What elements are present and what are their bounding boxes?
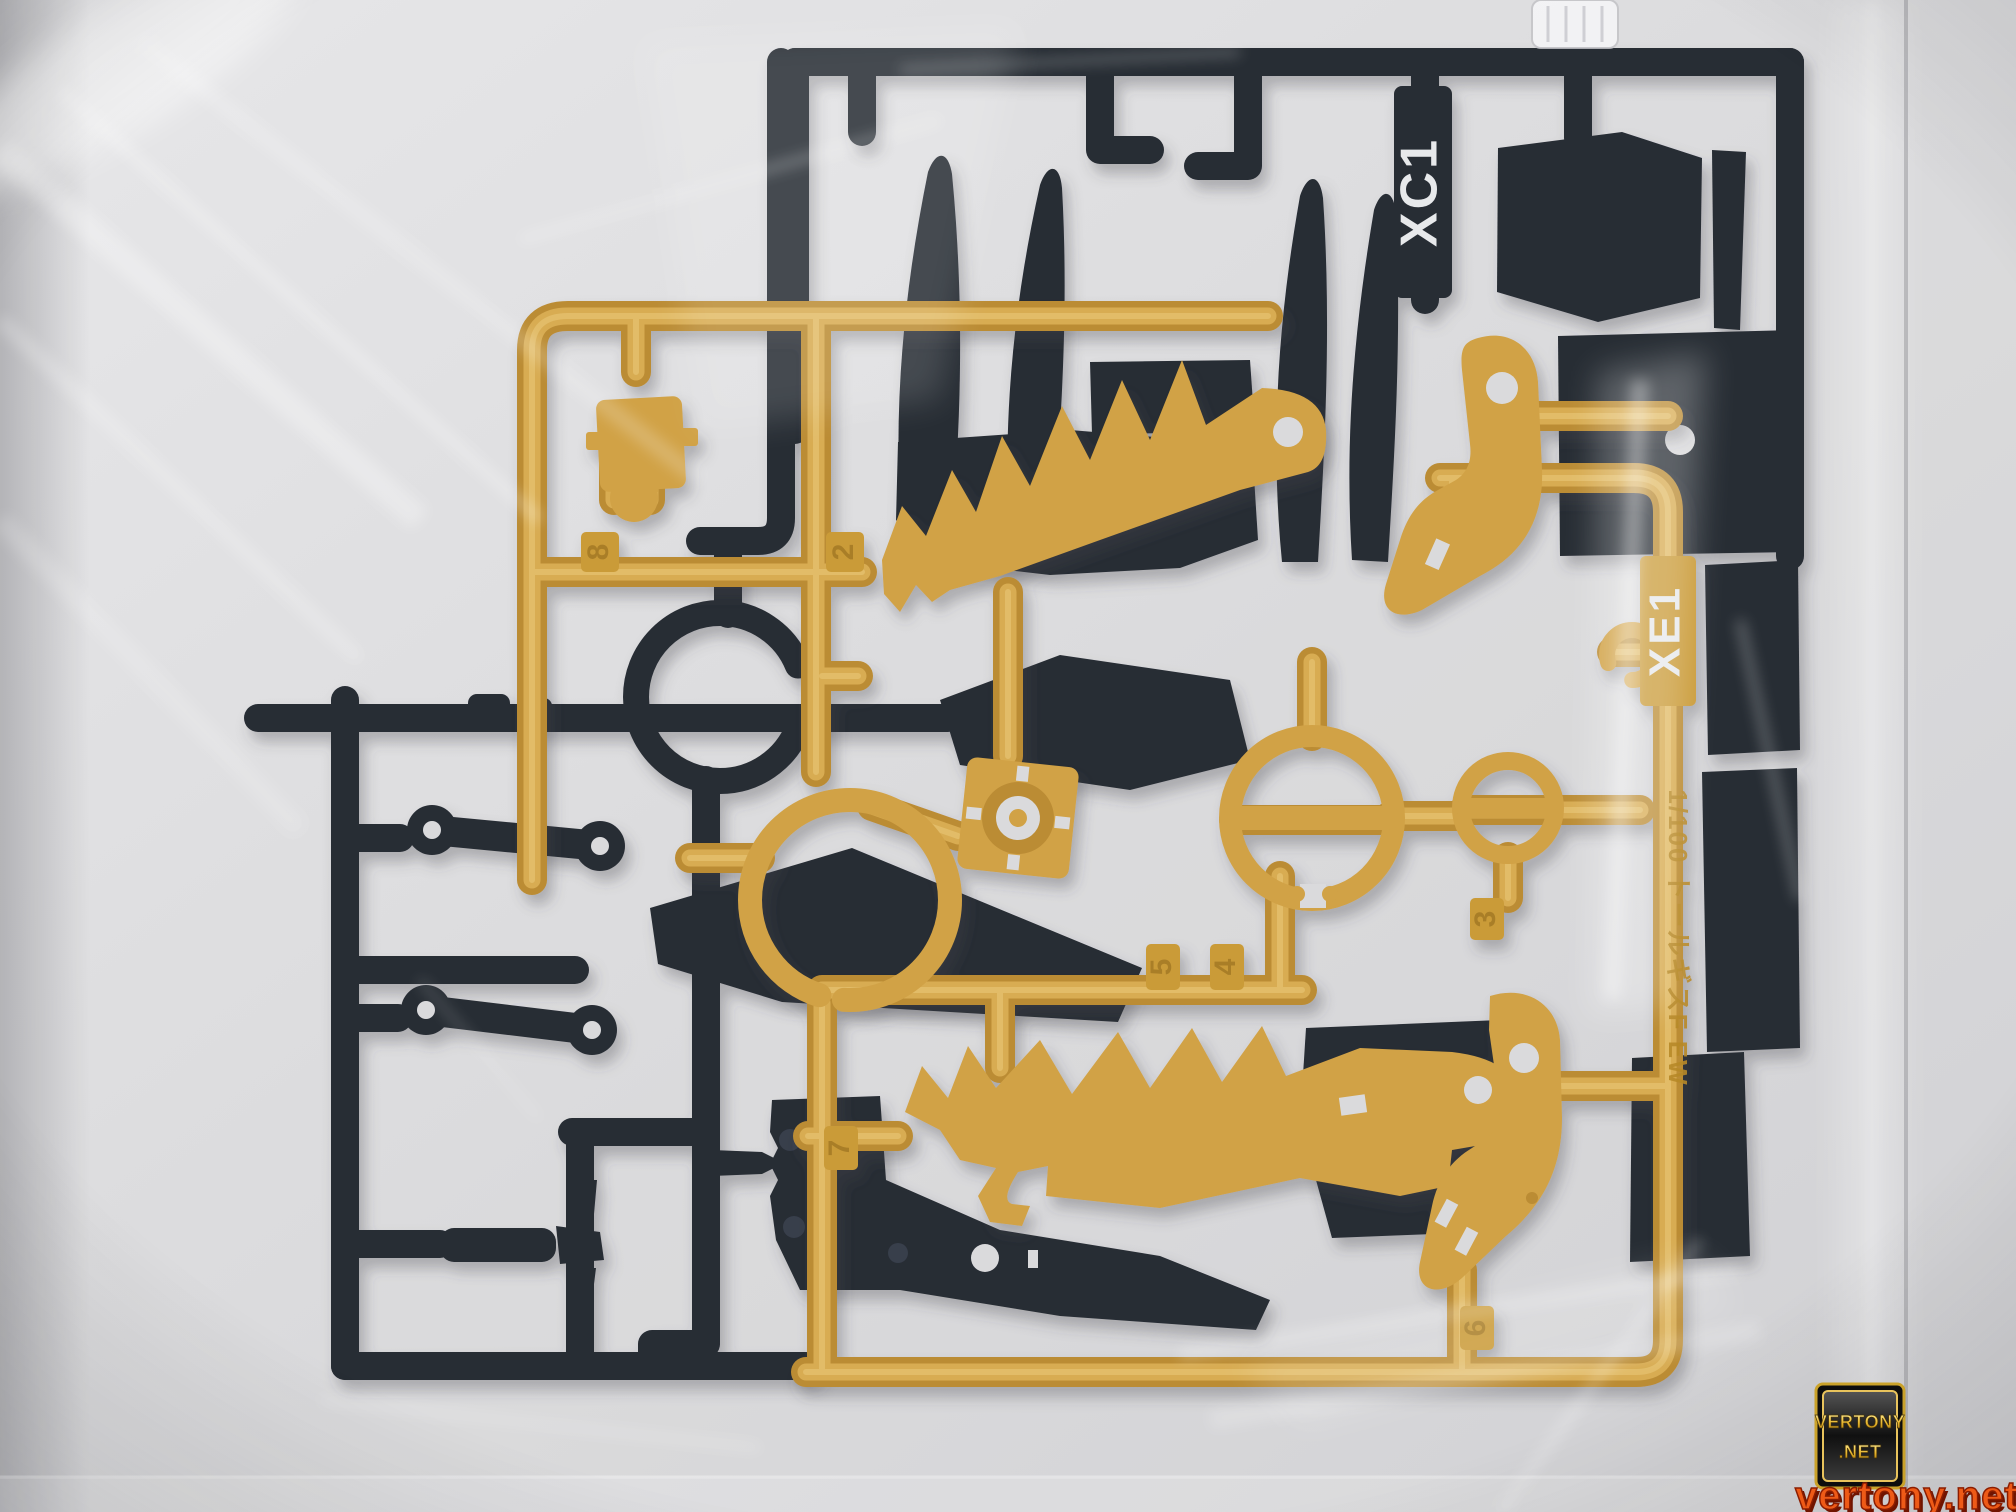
photo-gunpla-runner-in-bag: XC1 bbox=[0, 0, 2016, 1512]
black-runner-tag: XC1 bbox=[1391, 86, 1452, 298]
black-cylinder-part bbox=[440, 1228, 556, 1262]
watermark-url-text: vertony.net bbox=[1795, 1474, 2016, 1512]
part-number-6: 6 bbox=[1459, 1320, 1492, 1337]
black-elbow-part bbox=[556, 1226, 604, 1264]
part-number-5: 5 bbox=[1145, 959, 1178, 976]
watermark-badge-line1: VERTONY bbox=[1815, 1412, 1905, 1432]
black-nub-part-1 bbox=[468, 694, 510, 724]
gold-runner-tag: XE1 bbox=[1640, 556, 1696, 706]
clear-bag-clip bbox=[1532, 0, 1618, 48]
black-column-right-2 bbox=[1702, 768, 1800, 1052]
gold-collar-part bbox=[956, 756, 1079, 879]
runner-code-xe1: XE1 bbox=[1641, 585, 1690, 677]
part-number-7: 7 bbox=[823, 1140, 856, 1157]
black-column-right-1 bbox=[1705, 560, 1800, 755]
part-number-8: 8 bbox=[582, 544, 615, 561]
runner-code-xc1: XC1 bbox=[1391, 137, 1449, 247]
black-blade-right bbox=[1712, 150, 1746, 330]
part-number-3: 3 bbox=[1469, 911, 1502, 928]
part-number-4: 4 bbox=[1209, 958, 1242, 975]
part-number-2: 2 bbox=[827, 544, 860, 561]
photo-canvas: XC1 bbox=[0, 0, 2016, 1512]
black-chunk-right-1 bbox=[1497, 132, 1702, 322]
molded-scale-text: 1/100 トールギスF EW bbox=[1663, 789, 1693, 1086]
watermark-badge: VERTONY .NET bbox=[1815, 1384, 1905, 1488]
watermark-badge-line2: .NET bbox=[1838, 1442, 1881, 1462]
watermark-url: vertony.net vertony.net bbox=[1795, 1474, 2016, 1512]
